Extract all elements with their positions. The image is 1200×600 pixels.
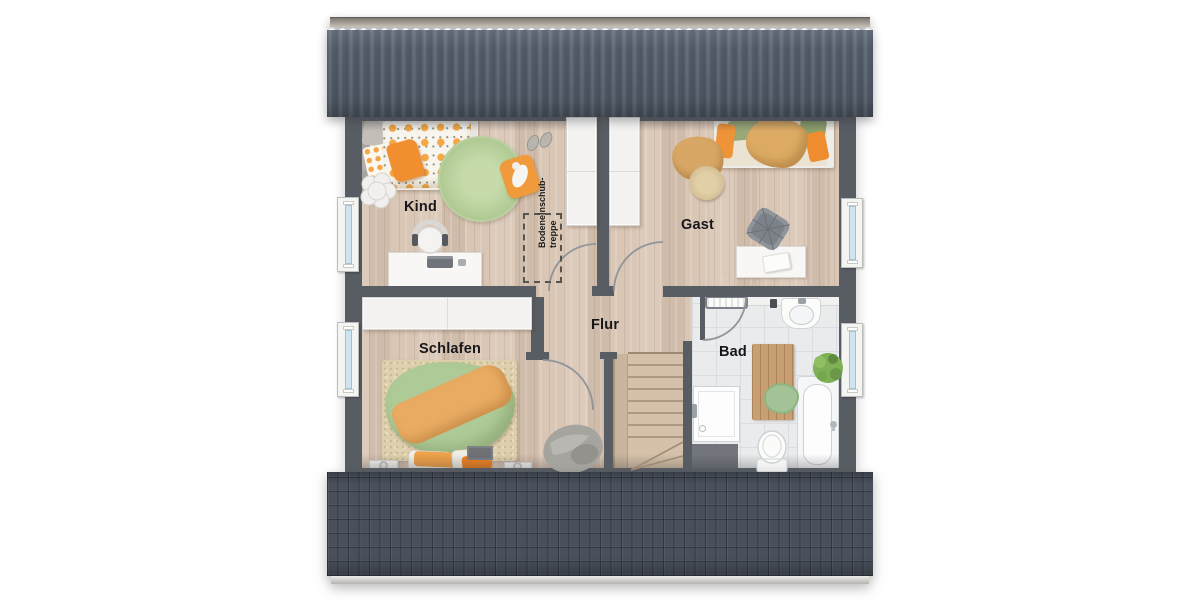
- window-schlafen: [337, 322, 359, 397]
- roof-corrugation: [327, 30, 873, 117]
- bath-sink-accessory: [770, 299, 777, 308]
- wall-schlafen-flur: [531, 297, 544, 353]
- wall-cap-schlafen-door: [526, 352, 549, 360]
- gast-round-rug: [689, 166, 724, 200]
- roof-band-bottom: [327, 472, 873, 585]
- wardrobe-schlafen: [362, 297, 532, 330]
- roof-eave-strip: [331, 576, 869, 584]
- gast-shelf-decor: [688, 274, 714, 286]
- bad-door-leaf: [700, 297, 705, 340]
- room-label-schlafen: Schlafen: [419, 341, 481, 357]
- shower-tray: [693, 386, 740, 442]
- floor-plan-canvas: Kind Gast Schlafen Flur Bad Bodeneinschu…: [0, 0, 1200, 600]
- attic-hatch-label: Bodeneinschub- treppe: [523, 213, 562, 283]
- room-label-gast: Gast: [681, 217, 714, 233]
- kind-desk-item: [458, 259, 466, 266]
- window-bad: [841, 323, 863, 397]
- room-label-flur: Flur: [591, 317, 619, 333]
- room-label-kind: Kind: [404, 199, 437, 215]
- wall-kind-flur: [597, 117, 609, 287]
- wardrobe-kind: [566, 117, 597, 226]
- window-gast: [841, 198, 863, 268]
- roof-tile-grid: [327, 472, 873, 576]
- bath-radiator: [705, 296, 748, 309]
- bath-sink: [781, 298, 821, 329]
- outer-wall-right: [839, 117, 856, 472]
- kind-laptop: [427, 256, 453, 268]
- wooden-bath-mat: [752, 344, 794, 420]
- wall-kind-schlafen: [345, 286, 536, 297]
- window-kind: [337, 197, 359, 272]
- wall-cap-kind-door: [592, 286, 614, 296]
- roof-band-top: [327, 17, 873, 117]
- gast-books-right: [810, 272, 840, 286]
- wall-stairs-west: [604, 352, 613, 472]
- room-label-bad: Bad: [719, 344, 747, 360]
- wardrobe-flur: [609, 117, 640, 226]
- wall-stairs-bad: [683, 341, 692, 472]
- wall-gast-bad: [663, 286, 839, 297]
- gast-books-left: [724, 272, 736, 286]
